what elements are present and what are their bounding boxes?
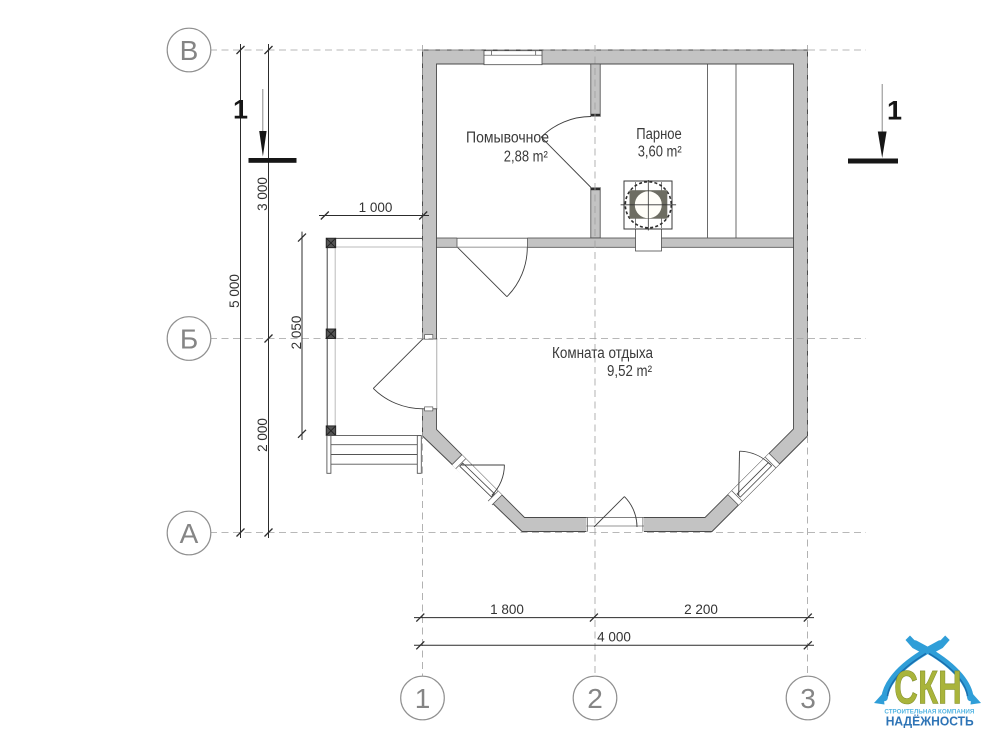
svg-text:Помывочное: Помывочное <box>466 129 549 146</box>
svg-text:5 000: 5 000 <box>227 274 242 308</box>
svg-text:2 200: 2 200 <box>684 602 718 617</box>
svg-text:Комната отдыха: Комната отдыха <box>552 345 653 362</box>
svg-text:1: 1 <box>233 95 248 125</box>
svg-text:1 800: 1 800 <box>490 602 524 617</box>
svg-text:2 000: 2 000 <box>255 418 270 452</box>
svg-text:3 000: 3 000 <box>255 177 270 211</box>
svg-text:2: 2 <box>587 683 603 714</box>
svg-text:НАДЁЖНОСТЬ: НАДЁЖНОСТЬ <box>886 714 974 729</box>
svg-text:А: А <box>180 518 199 549</box>
svg-text:1 000: 1 000 <box>359 200 393 215</box>
svg-text:2,88 m²: 2,88 m² <box>504 149 548 166</box>
svg-text:3,60 m²: 3,60 m² <box>638 143 682 160</box>
svg-text:2 050: 2 050 <box>289 316 304 350</box>
svg-text:Б: Б <box>180 324 198 355</box>
svg-text:СКН: СКН <box>894 661 962 714</box>
svg-text:4 000: 4 000 <box>597 629 631 644</box>
svg-text:1: 1 <box>415 683 431 714</box>
svg-text:Парное: Парное <box>636 126 682 143</box>
svg-text:9,52 m²: 9,52 m² <box>607 363 652 380</box>
svg-text:3: 3 <box>800 683 816 714</box>
svg-text:1: 1 <box>887 96 902 126</box>
svg-text:В: В <box>180 35 199 66</box>
